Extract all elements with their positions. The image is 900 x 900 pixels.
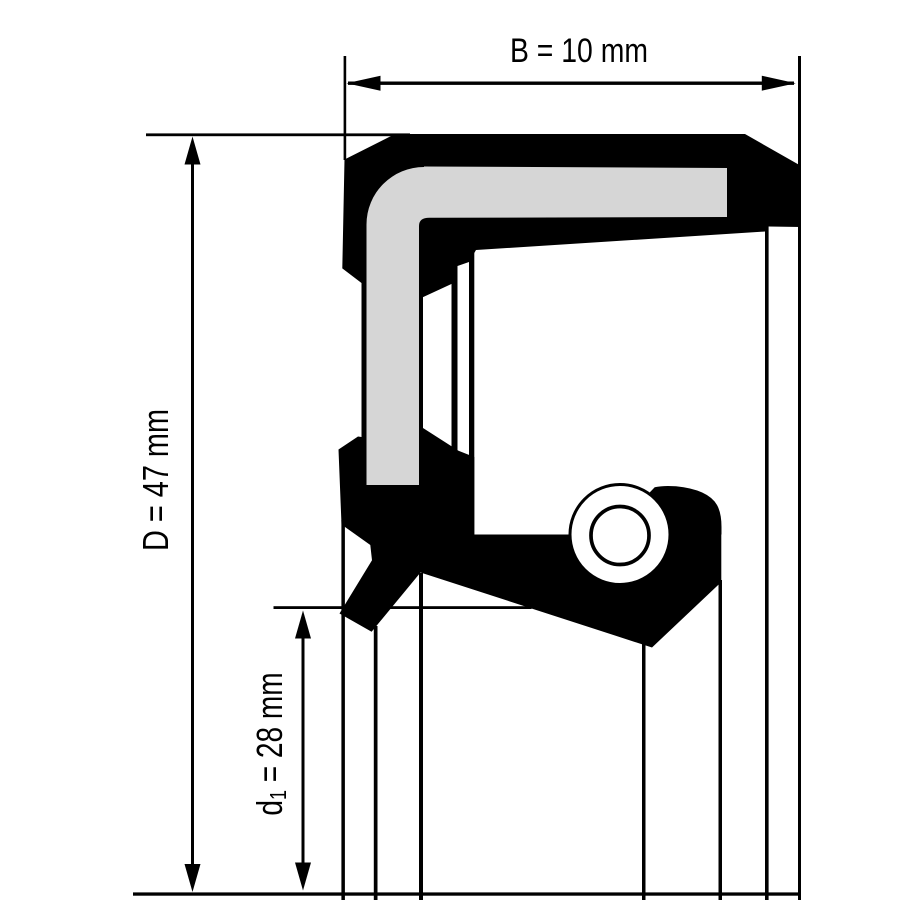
svg-text:D = 47 mm: D = 47 mm bbox=[135, 409, 176, 551]
svg-text:B = 10 mm: B = 10 mm bbox=[510, 32, 648, 70]
